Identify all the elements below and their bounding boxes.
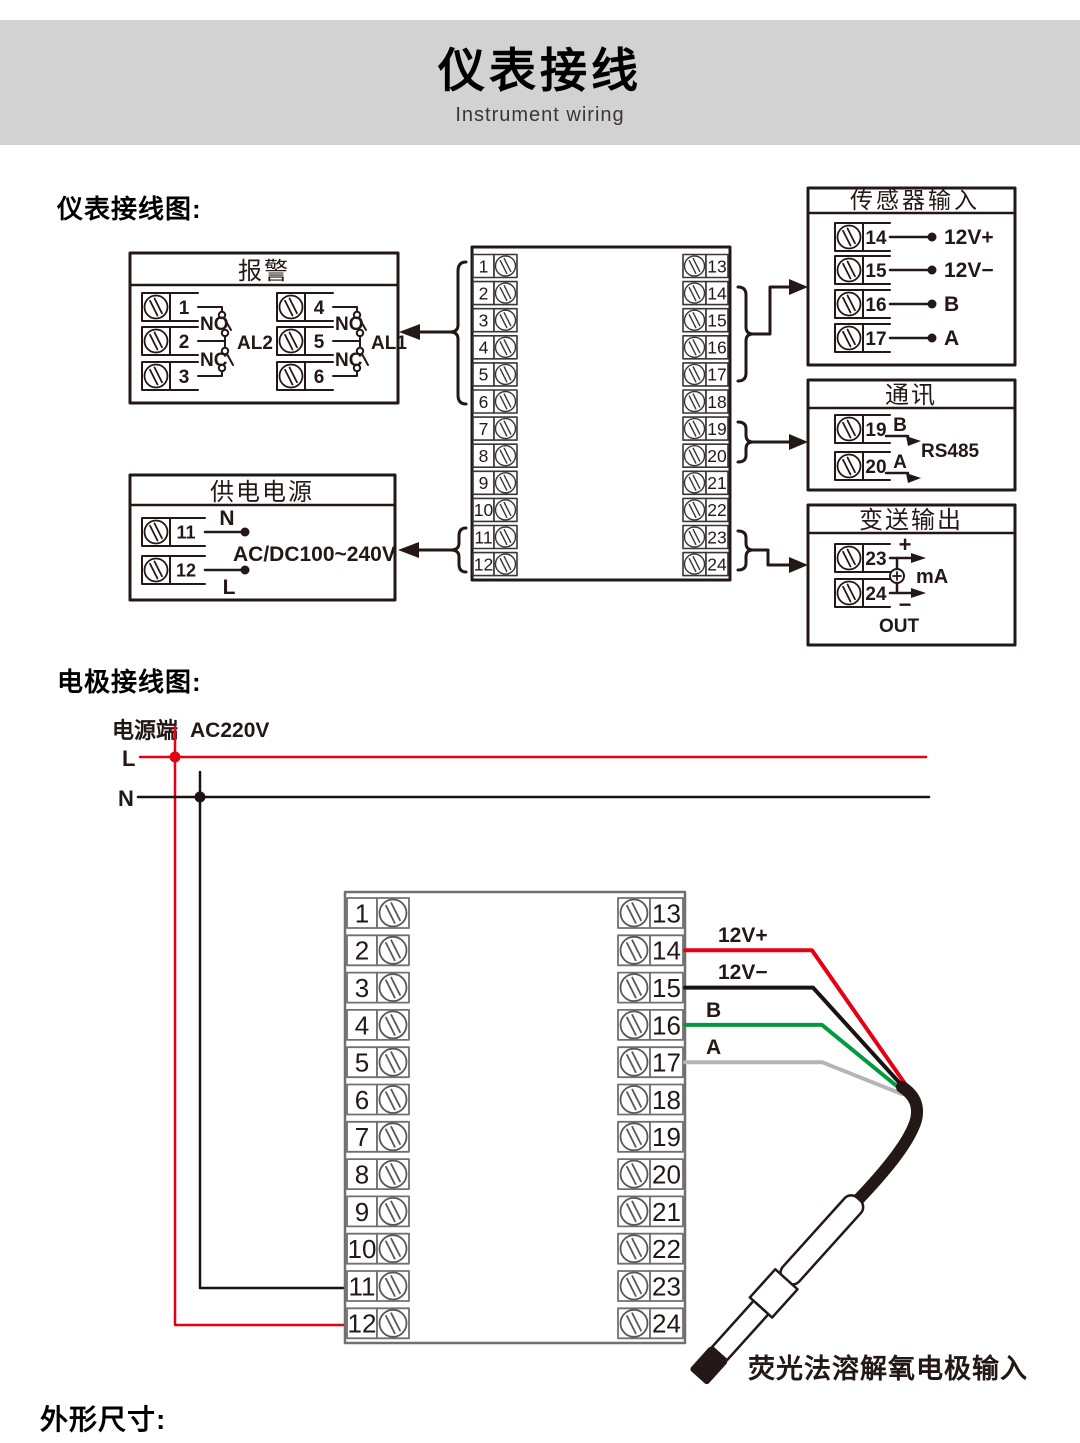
screw-terminal-icon [380,1273,407,1300]
terminal-row-3: 3 [473,309,517,332]
screw-terminal-icon [145,330,168,353]
terminal-row-17: 17 [618,1047,683,1077]
screw-terminal-icon [685,527,705,547]
screw-terminal-icon [496,364,516,384]
screw-terminal-icon [685,419,705,439]
terminal-row-23: 23 [618,1271,683,1301]
terminal-number: 12 [348,1309,377,1339]
terminal-row-10: 10 [347,1234,409,1264]
screw-terminal-icon [838,259,861,282]
neutral-label: N [219,507,234,530]
screw-terminal-icon [685,337,705,357]
terminal-number: 7 [479,419,489,439]
terminal-number: 18 [652,1085,681,1115]
screw-terminal-icon [380,1235,407,1262]
probe-cable [856,1087,917,1202]
terminal-number: 17 [652,1048,681,1078]
terminal-number: 3 [355,973,369,1003]
sensor-signal-label: A [944,327,959,350]
terminal-number: 11 [474,527,492,547]
no-label: NO [200,314,229,335]
screw-terminal-icon [685,500,705,520]
terminal-number: 20 [707,446,727,466]
nc-label: NC [335,350,363,371]
terminal-row-11: 11 [473,526,517,549]
terminal-row-14: 14 [683,282,728,305]
terminal-number: 2 [355,936,369,966]
electrode-wiring-diagram: 电源端 AC220V L N 1234567891011121314151617… [112,718,1028,1387]
terminal-number: 22 [707,500,726,520]
terminal-number: 5 [355,1048,369,1078]
terminal-row-12: 12 [473,553,517,576]
transmit-box-title: 变送输出 [859,507,963,534]
screw-terminal-icon [496,554,516,574]
terminal-row-18: 18 [683,390,728,413]
screw-terminal-icon [380,1161,407,1188]
terminal-row-4: 4 [473,336,517,359]
protocol-label: RS485 [921,441,980,462]
screw-terminal-icon [838,226,861,249]
brace-terminals-11-12 [451,528,466,572]
terminal-number: 24 [865,584,887,605]
terminal-row-15: 15 [618,973,683,1003]
terminal-row-6: 6 [347,1085,409,1115]
screw-terminal-icon [145,296,168,319]
terminal-row-9: 9 [473,471,517,494]
current-source-icon [890,569,904,583]
terminal-number: 14 [652,936,681,966]
terminal-number: 22 [652,1234,681,1264]
terminal-row-9: 9 [347,1196,409,1226]
terminal-16: 16 [835,290,890,318]
wire-node [928,266,937,275]
screw-terminal-icon [621,1273,648,1300]
terminal-number: 17 [865,329,886,350]
terminal-number: 19 [652,1122,681,1152]
screw-terminal-icon [496,419,516,439]
terminal-number: 23 [652,1271,681,1301]
terminal-number: 9 [355,1197,369,1227]
screw-terminal-icon [621,1161,648,1188]
screw-terminal-icon [496,392,516,412]
sensor-signal-label: 12V− [944,259,994,282]
out-label: OUT [879,616,920,637]
terminal-row-10: 10 [473,498,517,521]
terminal-row-19: 19 [683,417,728,440]
terminal-row-20: 20 [683,444,728,467]
plus-label: + [899,532,912,557]
terminal-number: 5 [314,332,325,353]
sensor-box-title: 传感器输入 [850,187,980,213]
terminal-row-16: 16 [618,1010,683,1040]
terminal-row-24: 24 [618,1308,683,1338]
screw-terminal-icon [380,1086,407,1113]
junction-dot [195,792,206,803]
screw-terminal-icon [380,937,407,964]
comm-a-label: A [893,452,907,473]
screw-terminal-icon [621,1086,648,1113]
terminal-number: 14 [707,283,727,303]
terminal-number: 15 [707,311,726,331]
screw-terminal-icon [621,1049,648,1076]
wire-node [928,233,937,242]
terminal-number: 6 [355,1085,369,1115]
terminal-14: 14 [835,223,890,251]
terminal-row-5: 5 [347,1047,409,1077]
comm-box-title: 通讯 [885,382,937,409]
wiring-diagram-canvas: 报警 123456 NO NC AL2 NO N [0,0,1080,1443]
screw-terminal-icon [280,296,303,319]
screw-terminal-icon [621,974,648,1001]
screw-terminal-icon [496,256,516,276]
terminal-number: 13 [707,256,726,276]
terminal-row-6: 6 [473,390,517,413]
terminal-number: 10 [474,500,494,520]
terminal-number: 24 [707,554,727,574]
terminal-row-11: 11 [347,1271,409,1301]
terminal-15: 15 [835,256,890,284]
terminal-row-15: 15 [683,309,728,332]
screw-terminal-icon [496,283,516,303]
arrow-to-comm-box [753,434,808,450]
terminal-number: 1 [479,256,489,276]
terminal-number: 5 [479,365,489,385]
terminal-number: 15 [865,261,887,282]
wire-node [928,334,937,343]
terminal-row-18: 18 [618,1085,683,1115]
screw-terminal-icon [380,974,407,1001]
neutral-terminal-label: N [118,786,134,811]
screw-terminal-icon [685,554,705,574]
terminal-row-4: 4 [347,1010,409,1040]
terminal-row-3: 3 [347,973,409,1003]
instrument-terminal-block: 123456789101112131415161718192021222324 [472,247,730,580]
screw-terminal-icon [496,310,516,330]
screw-terminal-icon [838,547,861,570]
nc-label: NC [200,350,228,371]
probe-wire-label: 12V− [718,961,768,984]
screw-terminal-icon [838,582,861,605]
terminal-number: 10 [348,1234,377,1264]
screw-terminal-icon [685,364,705,384]
comm-b-label: B [893,415,907,436]
terminal-row-8: 8 [347,1159,409,1189]
screw-terminal-icon [496,500,516,520]
voltage-label: AC/DC100~240V [233,543,396,566]
screw-terminal-icon [838,293,861,316]
terminal-number: 23 [707,527,726,547]
junction-dot [170,752,181,763]
terminal-number: 11 [176,522,195,542]
terminal-number: 2 [179,332,190,353]
terminal-number: 21 [652,1197,681,1227]
screw-terminal-icon [145,521,168,544]
sensor-signal-label: B [944,293,959,316]
brace-terminals-19-20 [738,422,753,462]
probe-input-label: 荧光法溶解氧电极输入 [748,1353,1028,1384]
terminal-row-24: 24 [683,553,728,576]
screw-terminal-icon [280,365,303,388]
wire-node [241,566,250,575]
screw-terminal-icon [621,937,648,964]
probe-wire-label: 12V+ [718,924,768,947]
power-end-label: 电源端 [112,718,178,743]
screw-terminal-icon [496,337,516,357]
wire-node [928,300,937,309]
live-label: L [223,576,236,599]
screw-terminal-icon [685,473,705,493]
screw-terminal-icon [621,1011,648,1038]
terminal-row-7: 7 [473,417,517,440]
screw-terminal-icon [685,256,705,276]
terminal-row-2: 2 [347,935,409,965]
terminal-row-22: 22 [618,1234,683,1264]
screw-terminal-icon [380,1198,407,1225]
screw-terminal-icon [685,392,705,412]
terminal-row-17: 17 [683,363,728,386]
terminal-row-23: 23 [683,526,728,549]
terminal-19: 19 [835,415,890,443]
screw-terminal-icon [380,1310,407,1337]
terminal-number: 23 [865,549,886,570]
ac220v-label: AC220V [190,719,269,742]
screw-terminal-icon [280,330,303,353]
terminal-number: 20 [652,1159,681,1189]
terminal-17: 17 [835,324,890,352]
alarm-box-title: 报警 [238,258,290,285]
brace-terminals-14-17 [738,287,753,381]
minus-label: − [899,592,912,617]
screw-terminal-icon [685,310,705,330]
screw-terminal-icon [838,455,861,478]
probe-wire-label: A [706,1036,721,1059]
terminal-row-20: 20 [618,1159,683,1189]
relay-al2-label: AL2 [237,333,273,354]
terminal-row-12: 12 [347,1308,409,1338]
terminal-number: 17 [707,365,726,385]
terminal-number: 8 [479,446,489,466]
sensor-signal-label: 12V+ [944,226,994,249]
terminal-row-22: 22 [683,498,728,521]
terminal-number: 24 [652,1309,681,1339]
terminal-row-14: 14 [618,935,683,965]
terminal-row-16: 16 [683,336,728,359]
terminal-row-1: 1 [473,255,517,278]
screw-terminal-icon [621,1198,648,1225]
screw-terminal-icon [145,559,168,582]
power-supply-box: 供电电源 1112 N L AC/DC100~240V [130,475,396,600]
terminal-number: 19 [865,420,886,441]
terminal-row-13: 13 [618,898,683,928]
terminal-24: 24 [835,579,890,607]
terminal-number: 6 [314,367,325,388]
terminal-number: 7 [355,1122,369,1152]
terminal-row-21: 21 [618,1196,683,1226]
terminal-number: 14 [865,228,887,249]
screw-terminal-icon [496,446,516,466]
terminal-row-21: 21 [683,471,728,494]
terminal-20: 20 [835,452,890,480]
terminal-number: 4 [314,298,325,319]
transmit-output-box: 变送输出 2324 + mA − OUT [808,505,1015,645]
brace-terminals-23-24 [738,531,753,570]
terminal-number: 4 [479,338,489,358]
screw-terminal-icon [838,327,861,350]
terminal-row-8: 8 [473,444,517,467]
terminal-number: 3 [479,311,489,331]
terminal-number: 16 [865,295,886,316]
terminal-number: 18 [707,392,726,412]
brace-terminals-1-6 [450,262,466,404]
terminal-number: 21 [707,473,726,493]
terminal-23: 23 [835,544,890,572]
terminal-number: 16 [652,1010,681,1040]
screw-terminal-icon [685,283,705,303]
terminal-number: 8 [355,1159,369,1189]
terminal-number: 13 [652,898,681,928]
terminal-number: 1 [179,298,190,319]
unit-label: mA [916,566,948,588]
screw-terminal-icon [621,1123,648,1150]
neutral-wire [200,772,347,1288]
relay-al1-label: AL1 [371,333,407,354]
arrow-to-power-box [398,542,451,558]
comm-box: 通讯 1920 B A RS485 [808,380,1015,490]
terminal-number: 9 [479,473,489,493]
screw-terminal-icon [838,418,861,441]
terminal-number: 2 [479,283,489,303]
terminal-number: 16 [707,338,726,358]
arrow-to-sensor-box [753,279,808,334]
electrode-terminal-block: 123456789101112131415161718192021222324 [345,892,685,1343]
wire-node [241,528,250,537]
sensor-cable-wires: 12V+12V−BA [685,924,908,1094]
probe-wire-17 [685,1062,902,1094]
screw-terminal-icon [621,1310,648,1337]
screw-terminal-icon [621,1235,648,1262]
terminal-number: 3 [179,367,190,388]
power-box-title: 供电电源 [210,479,314,506]
terminal-row-13: 13 [683,255,728,278]
screw-terminal-icon [380,1123,407,1150]
terminal-number: 12 [176,560,196,580]
instrument-wiring-diagram: 报警 123456 NO NC AL2 NO N [130,187,1015,645]
terminal-row-5: 5 [473,363,517,386]
terminal-row-2: 2 [473,282,517,305]
sensor-input-box: 传感器输入 1412V+1512V−16B17A [808,187,1015,365]
screw-terminal-icon [496,527,516,547]
terminal-number: 1 [355,898,369,928]
terminal-number: 20 [865,457,886,478]
screw-terminal-icon [496,473,516,493]
probe-wire-label: B [706,999,721,1022]
terminal-row-19: 19 [618,1122,683,1152]
terminal-number: 19 [707,419,726,439]
screw-terminal-icon [380,1011,407,1038]
live-terminal-label: L [122,746,135,771]
arrow-to-transmit-box [753,550,808,573]
alarm-box: 报警 123456 NO NC AL2 NO N [130,253,407,403]
screw-terminal-icon [145,365,168,388]
screw-terminal-icon [685,446,705,466]
terminal-number: 6 [479,392,489,412]
terminal-row-7: 7 [347,1122,409,1152]
terminal-number: 12 [474,554,493,574]
screw-terminal-icon [380,1049,407,1076]
terminal-row-1: 1 [347,898,409,928]
terminal-number: 15 [652,973,681,1003]
terminal-number: 11 [349,1271,376,1301]
screw-terminal-icon [380,900,407,927]
screw-terminal-icon [621,900,648,927]
terminal-number: 4 [355,1010,369,1040]
page: 仪表接线 Instrument wiring 仪表接线图: 电极接线图: 外形尺… [0,0,1080,1443]
no-label: NO [335,314,364,335]
